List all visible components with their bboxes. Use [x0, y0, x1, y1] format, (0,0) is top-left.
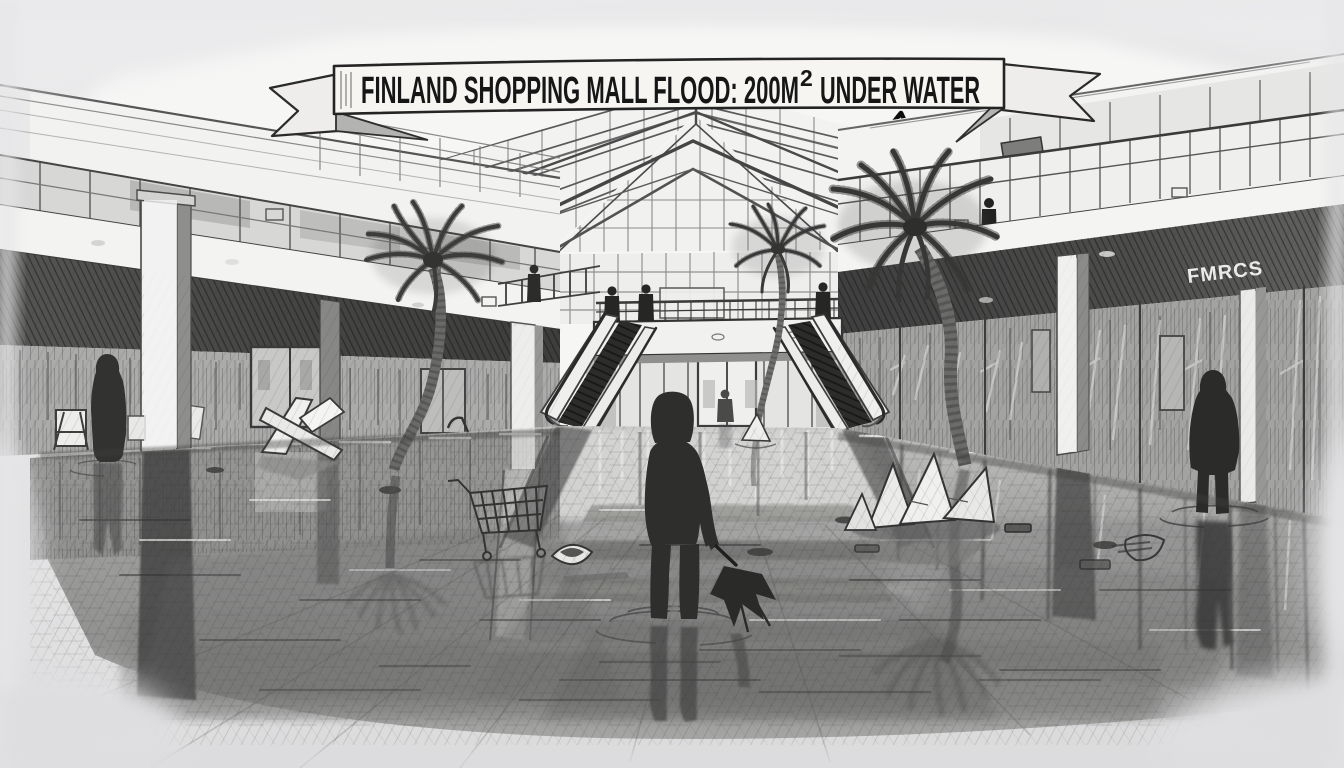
svg-text:FINLAND SHOPPING MALL FLOOD: 2: FINLAND SHOPPING MALL FLOOD: 200M [361, 70, 799, 112]
svg-text:2: 2 [800, 65, 813, 91]
svg-text:UNDER WATER: UNDER WATER [820, 70, 980, 112]
